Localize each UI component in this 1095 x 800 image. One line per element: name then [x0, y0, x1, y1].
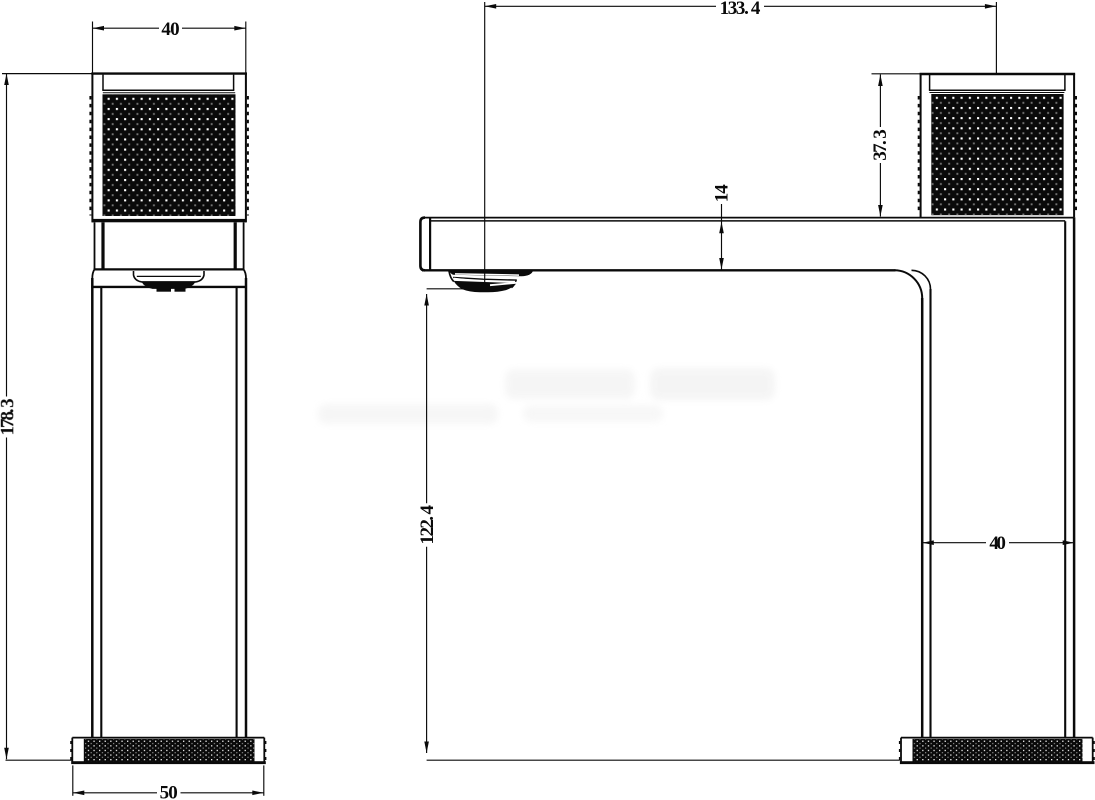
svg-text:40: 40: [989, 533, 1006, 554]
svg-text:50: 50: [160, 783, 178, 800]
svg-text:37. 3: 37. 3: [870, 129, 891, 161]
svg-text:133. 4: 133. 4: [720, 0, 761, 19]
svg-text:178. 3: 178. 3: [0, 398, 18, 435]
svg-text:122. 4: 122. 4: [417, 504, 438, 544]
svg-text:40: 40: [161, 19, 179, 40]
svg-text:14: 14: [711, 184, 732, 203]
